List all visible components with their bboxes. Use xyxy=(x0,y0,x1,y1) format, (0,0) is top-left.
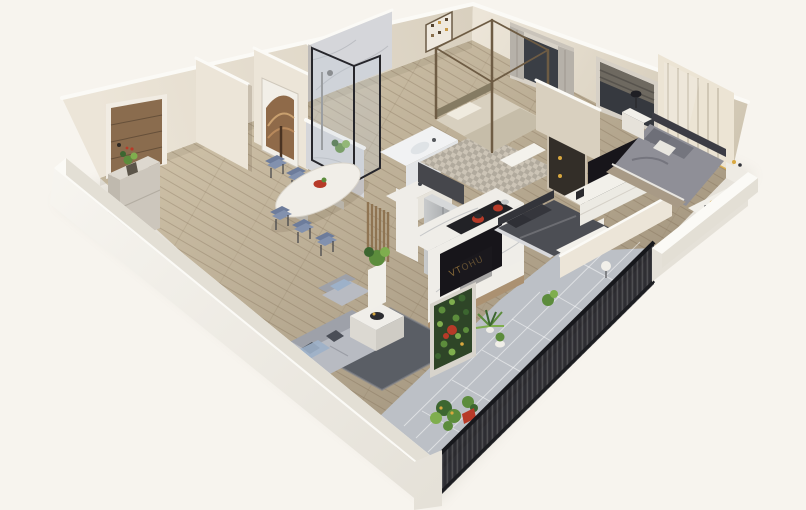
floorplan-render: VTOHU xyxy=(0,0,806,510)
marble-pillar xyxy=(396,188,418,262)
faucet xyxy=(432,138,436,142)
red-pot xyxy=(493,205,503,212)
white-pot-plant xyxy=(495,341,505,348)
door-handle xyxy=(117,143,121,147)
tray xyxy=(370,312,384,320)
red-flowers xyxy=(447,325,457,335)
table-lamp xyxy=(631,91,642,98)
glass-shower xyxy=(312,48,380,182)
shower-head xyxy=(327,70,333,76)
